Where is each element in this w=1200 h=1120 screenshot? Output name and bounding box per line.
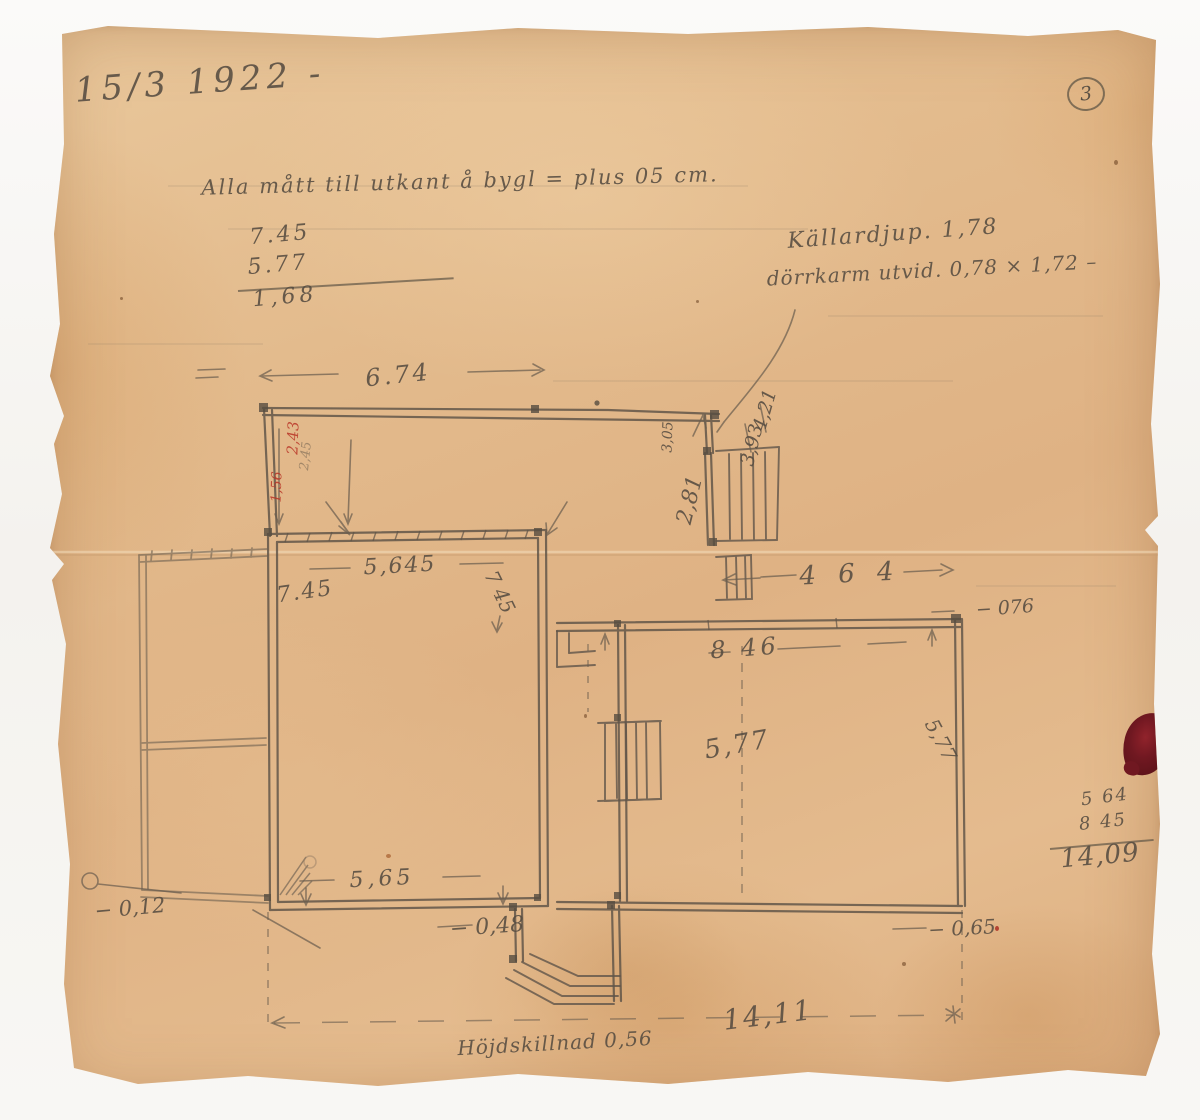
red-speck	[995, 926, 999, 931]
dashed-extension-lines	[268, 644, 962, 1024]
paper-speck	[386, 854, 391, 858]
paper-sheet: 15/3 1922 - 3 Alla mått till utkant å by…	[48, 24, 1162, 1102]
paper-speck	[902, 962, 906, 966]
dim-left-room-bottom-width: 5,65	[349, 865, 415, 893]
paper-speck	[1114, 160, 1118, 165]
calc-top-subtrahend: 5.77	[247, 250, 310, 280]
page-number: 3	[1079, 82, 1093, 105]
dim-stair-run-a: 3,05	[659, 421, 676, 453]
left-room-walls	[139, 548, 268, 903]
paper-speck	[120, 297, 123, 300]
dim-right-room-width: 8 46	[709, 632, 780, 665]
calc-top-minuend: 7.45	[249, 220, 312, 250]
dim-left-room-width: 5,645	[363, 552, 437, 581]
red-mark-lower: 1,56	[268, 471, 285, 503]
scan-background: 15/3 1922 - 3 Alla mått till utkant å by…	[0, 0, 1200, 1120]
paper-speck	[696, 300, 699, 303]
pencil-mark-wall-inner: 2,45	[297, 441, 315, 471]
guide-lines	[88, 186, 1116, 586]
door-swing-hatch	[280, 856, 316, 895]
dim-offset-southeast: − 0,65	[928, 914, 997, 942]
dim-offset-south: − 0,48	[449, 912, 525, 942]
dim-east-offset-width: 4 6 4	[799, 556, 902, 591]
walls	[263, 408, 965, 1001]
paper-speck	[584, 714, 587, 718]
dim-offset-northeast: − 076	[975, 595, 1035, 621]
